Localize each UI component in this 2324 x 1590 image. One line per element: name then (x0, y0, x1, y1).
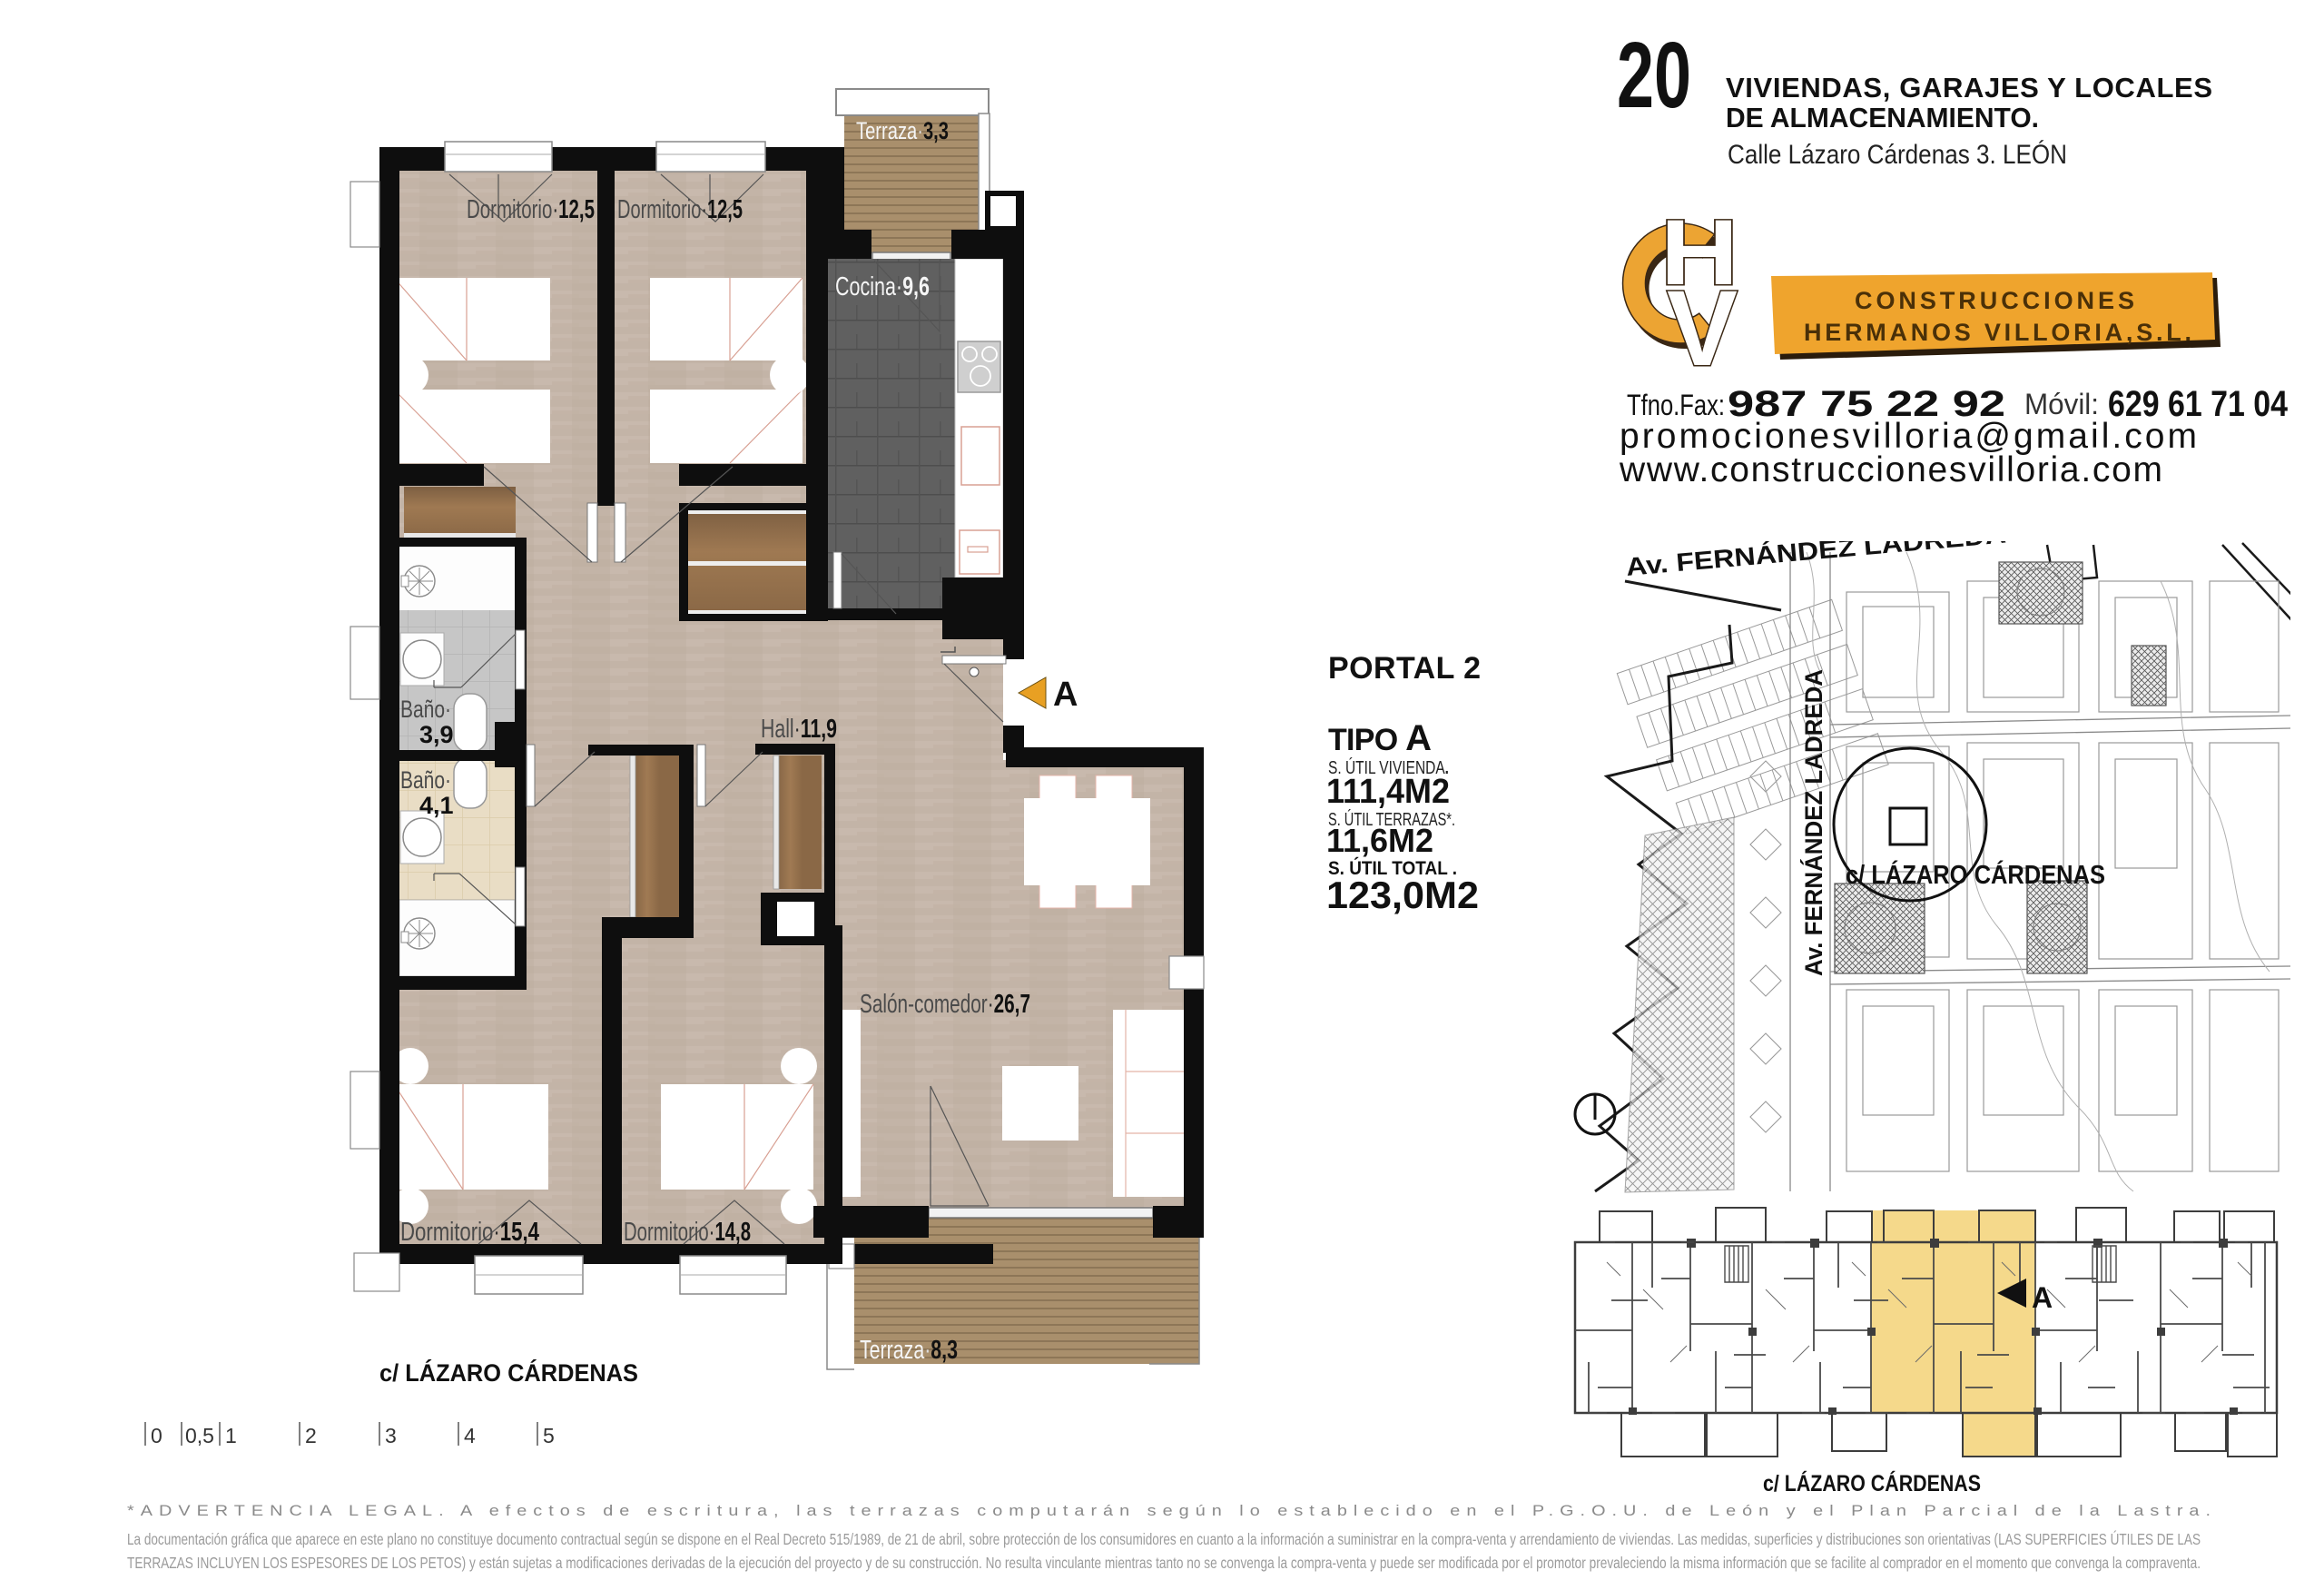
svg-text:Av. FERNÁNDEZ LADREDA: Av. FERNÁNDEZ LADREDA (1625, 519, 2007, 580)
svg-text:A: A (1053, 676, 1078, 714)
svg-text:Dormitorio·15,4: Dormitorio·15,4 (400, 1218, 539, 1247)
svg-text:Hall·11,9: Hall·11,9 (761, 715, 837, 744)
svg-text:Móvil:: Móvil: (2024, 388, 2099, 420)
svg-text:Calle Lázaro Cárdenas 3. LEÓN: Calle Lázaro Cárdenas 3. LEÓN (1728, 140, 2067, 170)
svg-text:1: 1 (225, 1424, 237, 1447)
svg-text:TIPO A: TIPO A (1328, 718, 1432, 758)
svg-text:123,0M2: 123,0M2 (1326, 874, 1479, 916)
svg-text:11,6M2: 11,6M2 (1326, 822, 1433, 859)
svg-text:5: 5 (543, 1424, 555, 1447)
svg-text:A: A (2032, 1281, 2053, 1314)
svg-text:Dormitorio·12,5: Dormitorio·12,5 (467, 195, 595, 224)
svg-text:Dormitorio·14,8: Dormitorio·14,8 (624, 1218, 751, 1247)
svg-text:3: 3 (385, 1424, 397, 1447)
svg-text:0: 0 (151, 1424, 162, 1447)
svg-text:TERRAZAS INCLUYEN LOS ESPESORE: TERRAZAS INCLUYEN LOS ESPESORES DE LOS P… (127, 1554, 2201, 1572)
svg-text:20: 20 (1617, 23, 1691, 127)
svg-text:c/ LÁZARO CÁRDENAS: c/ LÁZARO CÁRDENAS (1763, 1470, 1981, 1496)
svg-text:Terraza·3,3: Terraza·3,3 (856, 117, 949, 144)
svg-text:Terraza·8,3: Terraza·8,3 (860, 1336, 958, 1365)
svg-text:c/ LÁZARO CÁRDENAS: c/ LÁZARO CÁRDENAS (379, 1358, 638, 1387)
svg-text:La documentación gráfica que a: La documentación gráfica que aparece en … (127, 1529, 2201, 1548)
svg-text:0,5: 0,5 (185, 1424, 214, 1447)
svg-text:Salón-comedor·26,7: Salón-comedor·26,7 (860, 990, 1030, 1019)
svg-text:Cocina·9,6: Cocina·9,6 (835, 272, 930, 301)
svg-text:2: 2 (305, 1424, 317, 1447)
svg-text:111,4M2: 111,4M2 (1326, 773, 1450, 811)
svg-text:c/ LÁZARO CÁRDENAS: c/ LÁZARO CÁRDENAS (1846, 859, 2105, 890)
svg-text:Baño·: Baño· (400, 696, 451, 723)
svg-text:*ADVERTENCIA LEGAL. A efectos: *ADVERTENCIA LEGAL. A efectos de escritu… (127, 1502, 2217, 1519)
svg-text:VIVIENDAS, GARAJES Y LOCALES: VIVIENDAS, GARAJES Y LOCALES (1726, 72, 2212, 104)
svg-text:4,1: 4,1 (419, 792, 454, 819)
svg-text:www.construccionesvilloria.com: www.construccionesvilloria.com (1619, 450, 2162, 489)
svg-text:3,9: 3,9 (419, 721, 454, 748)
svg-text:DE ALMACENAMIENTO.: DE ALMACENAMIENTO. (1726, 102, 2039, 133)
svg-text:Dormitorio·12,5: Dormitorio·12,5 (617, 195, 743, 224)
svg-text:V: V (1667, 269, 1738, 389)
svg-text:4: 4 (464, 1424, 476, 1447)
svg-text:PORTAL 2: PORTAL 2 (1328, 651, 1481, 686)
svg-text:Av. FERNÁNDEZ LADREDA: Av. FERNÁNDEZ LADREDA (1799, 669, 1827, 976)
svg-text:Baño·: Baño· (400, 766, 451, 794)
